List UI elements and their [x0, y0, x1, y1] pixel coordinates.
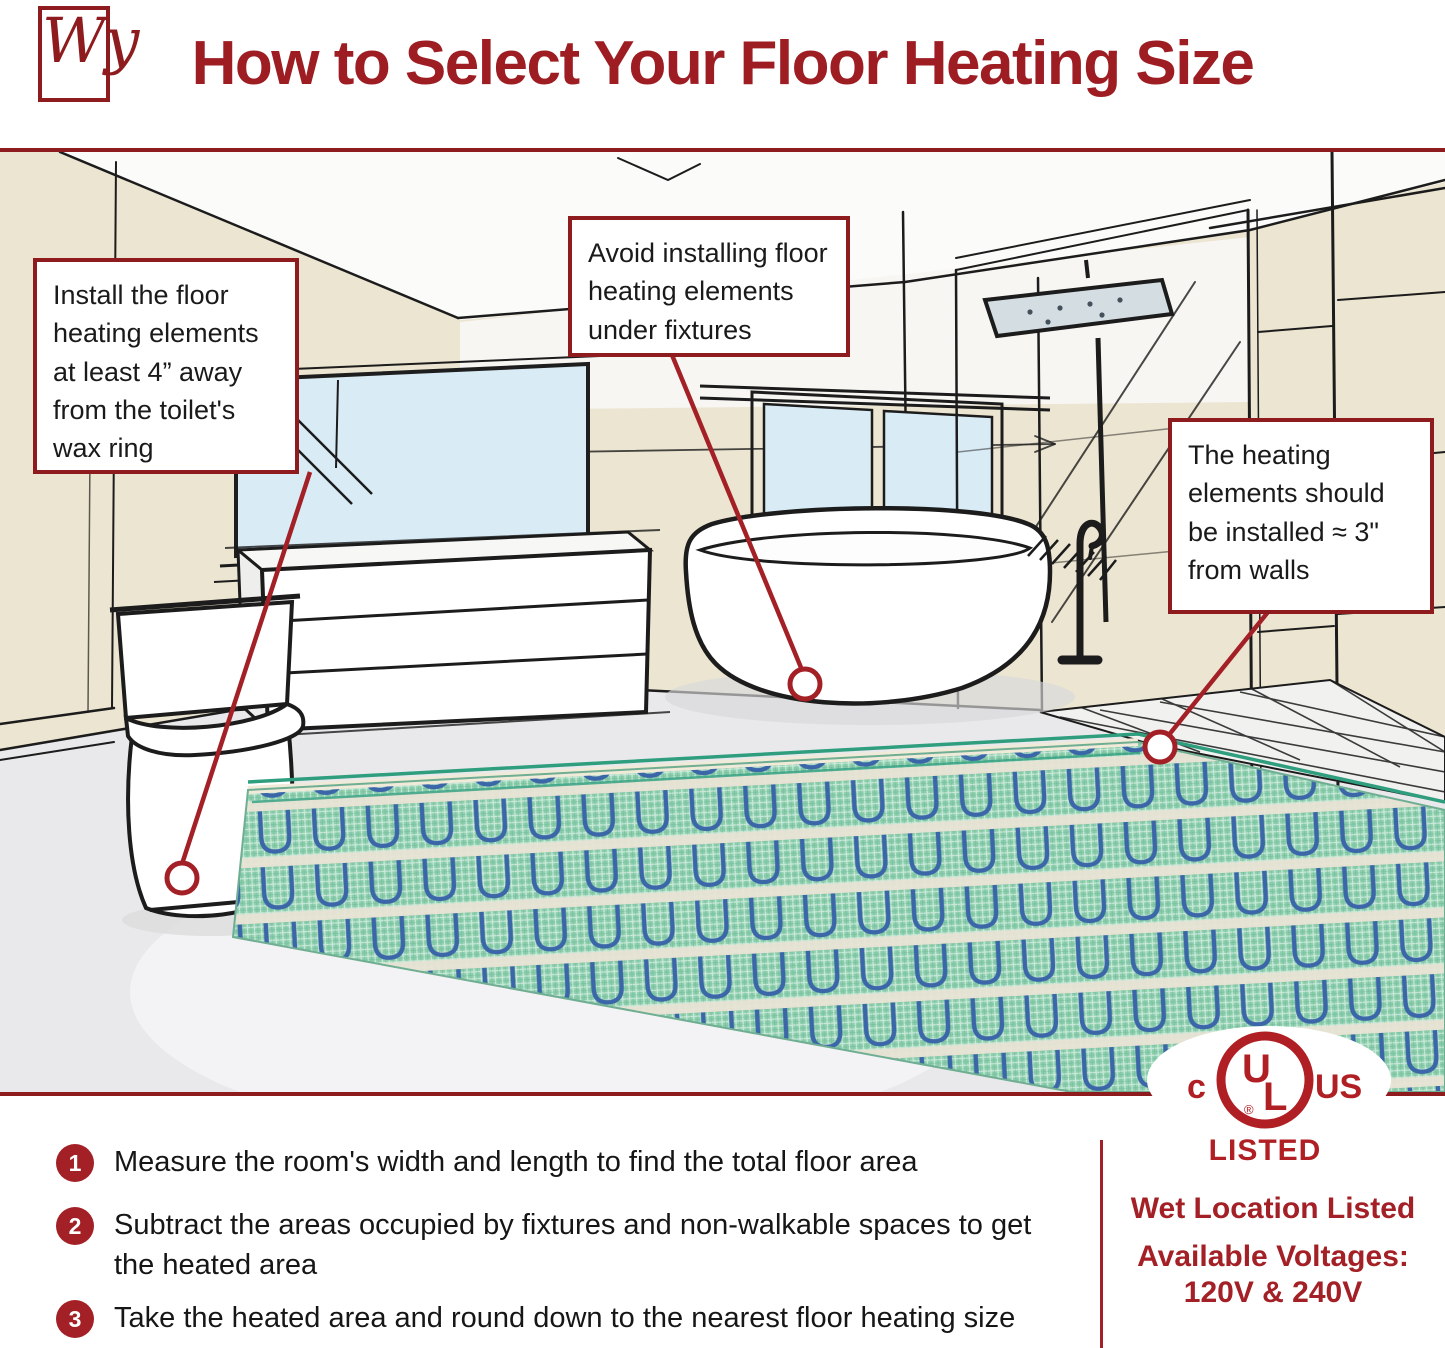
step-row-3: 3 Take the heated area and round down to… [56, 1298, 1066, 1338]
callout-fixtures-text: Avoid installing floor heating elements … [588, 238, 828, 345]
page-title: How to Select Your Floor Heating Size [0, 28, 1445, 99]
footer-certification-text: Wet Location Listed Available Voltages: … [1108, 1192, 1438, 1310]
callout-wall-clearance: The heating elements should be installed… [1168, 418, 1434, 614]
voltages-value: 120V & 240V [1108, 1276, 1438, 1310]
callout-marker-wall [1145, 732, 1175, 762]
callout-toilet-clearance: Install the floor heating elements at le… [33, 258, 299, 474]
ul-canada-mark: c [1187, 1068, 1206, 1106]
callout-marker-toilet [167, 863, 197, 893]
wet-location-label: Wet Location Listed [1108, 1192, 1438, 1226]
step-text: Measure the room's width and length to f… [114, 1142, 918, 1182]
step-number-badge: 3 [56, 1300, 94, 1338]
callout-toilet-text: Install the floor heating elements at le… [53, 280, 259, 463]
callout-walls-text: The heating elements should be installed… [1188, 440, 1385, 585]
callout-marker-tub [790, 669, 820, 699]
step-row-1: 1 Measure the room's width and length to… [56, 1142, 1066, 1182]
ul-listed-logo: U L ® c US LISTED [1145, 1022, 1400, 1172]
ul-registered-mark: ® [1244, 1102, 1254, 1117]
step-number-badge: 2 [56, 1207, 94, 1245]
step-row-2: 2 Subtract the areas occupied by fixture… [56, 1205, 1066, 1285]
step-text: Take the heated area and round down to t… [114, 1298, 1015, 1338]
infographic-canvas: Wy How to Select Your Floor Heating Size [0, 0, 1445, 1348]
ul-letter-l: L [1263, 1075, 1287, 1119]
footer-divider [1100, 1140, 1103, 1348]
ul-listed-label: LISTED [1209, 1134, 1322, 1167]
ul-us-mark: US [1315, 1068, 1362, 1106]
available-voltages-label: Available Voltages: [1108, 1240, 1438, 1274]
callout-avoid-fixtures: Avoid installing floor heating elements … [568, 216, 850, 357]
step-number-badge: 1 [56, 1144, 94, 1182]
step-text: Subtract the areas occupied by fixtures … [114, 1205, 1066, 1285]
